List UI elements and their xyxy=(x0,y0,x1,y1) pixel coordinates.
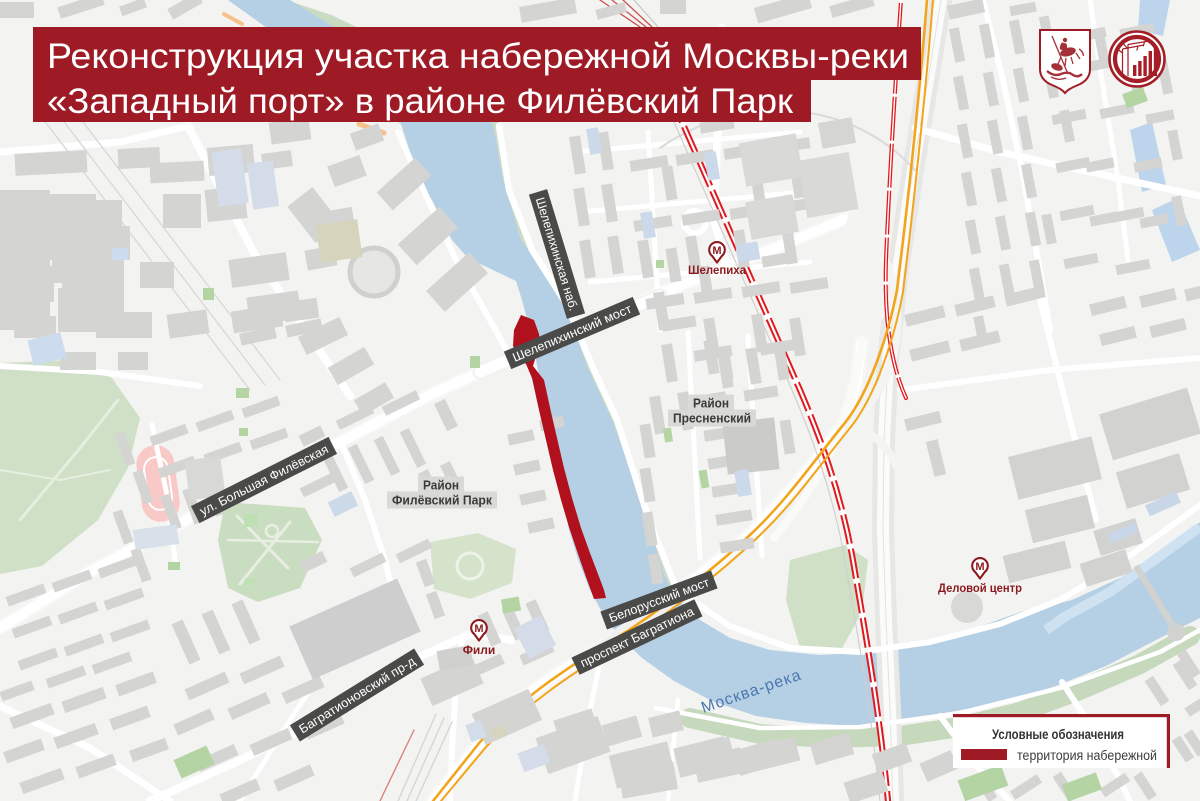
svg-text:М: М xyxy=(474,623,483,635)
svg-text:М: М xyxy=(712,245,721,257)
svg-text:Условные обозначения: Условные обозначения xyxy=(992,727,1124,742)
svg-text:Реконструкция участка набережн: Реконструкция участка набережной Москвы-… xyxy=(47,37,909,76)
svg-text:Район: Район xyxy=(423,478,459,493)
svg-text:М: М xyxy=(975,561,984,573)
svg-text:Пресненский: Пресненский xyxy=(673,411,751,426)
svg-text:Деловой центр: Деловой центр xyxy=(938,581,1022,595)
svg-text:Фили: Фили xyxy=(463,643,496,657)
svg-text:Филёвский Парк: Филёвский Парк xyxy=(392,493,492,508)
svg-text:Шелепиха: Шелепиха xyxy=(688,263,746,277)
svg-text:«Западный порт» в районе Филёв: «Западный порт» в районе Филёвский Парк xyxy=(47,82,794,121)
svg-text:Район: Район xyxy=(693,396,729,411)
svg-text:территория набережной: территория набережной xyxy=(1017,748,1157,763)
